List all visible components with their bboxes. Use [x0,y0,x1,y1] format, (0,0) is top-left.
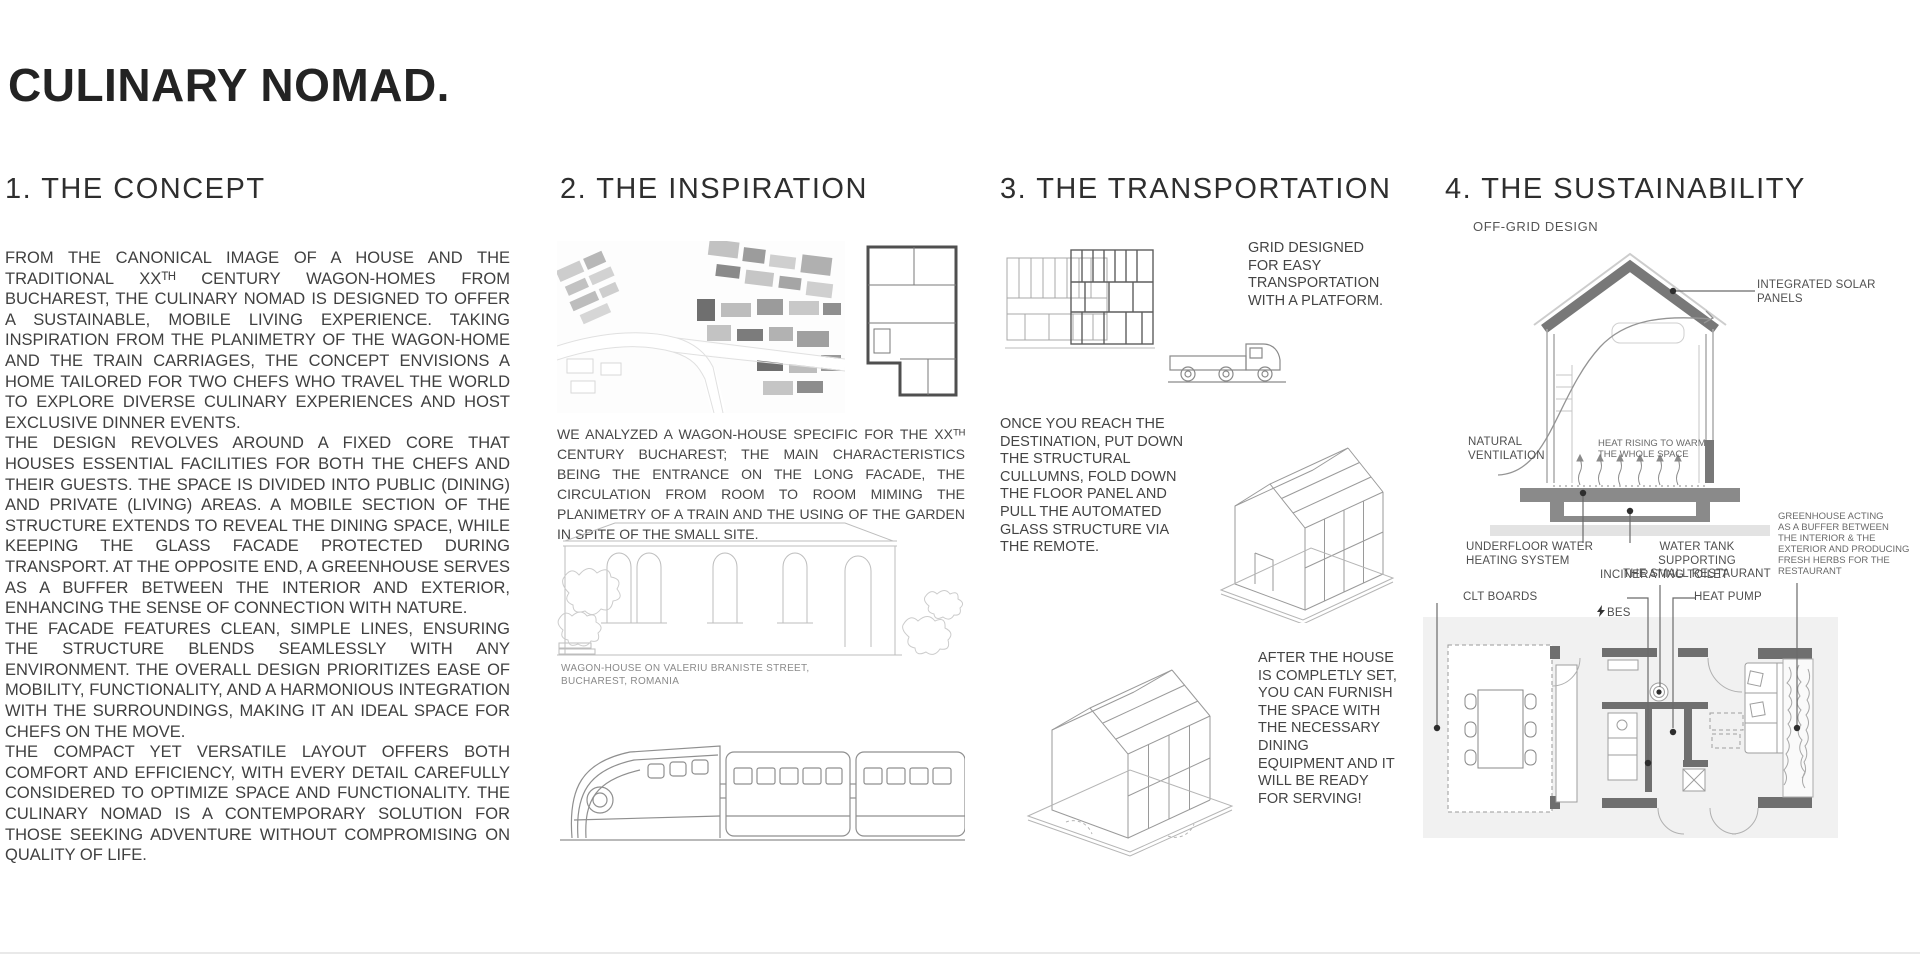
concept-paragraph-3: THE FACADE FEATURES CLEAN, SIMPLE LINES,… [5,619,510,743]
concept-heading: 1. THE CONCEPT [5,173,266,206]
label-underfloor: UNDERFLOOR WATER HEATING SYSTEM [1466,541,1593,568]
label-solar-panels: INTEGRATED SOLAR PANELS [1757,279,1920,306]
concept-text: FROM THE CANONICAL IMAGE OF A HOUSE AND … [5,248,510,866]
label-heat-pump: HEAT PUMP [1694,591,1762,605]
transportation-step2: ONCE YOU REACH THE DESTINATION, PUT DOWN… [1000,416,1230,557]
label-natural-ventilation: NATURAL VENTILATION [1468,436,1545,463]
house-axonometric-2 [1018,610,1258,865]
truck-drawing [1168,326,1286,390]
inspiration-heading: 2. THE INSPIRATION [560,173,868,206]
lightning-bolt-icon [1597,605,1605,617]
poster-title: CULINARY NOMAD. [8,58,450,112]
house-cross-section [1490,254,1770,543]
concept-paragraph-2: THE DESIGN REVOLVES AROUND A FIXED CORE … [5,433,510,618]
label-heat-rising: HEAT RISING TO WARM THE WHOLE SPACE [1598,438,1706,460]
bottom-border [0,952,1920,954]
label-bes-text: BES [1607,607,1631,619]
transportation-step1: GRID DESIGNED FOR EASY TRANSPORTATION WI… [1248,240,1428,310]
concept-paragraph-4: THE COMPACT YET VERSATILE LAYOUT OFFERS … [5,742,510,866]
sustainability-heading: 4. THE SUSTAINABILITY [1445,173,1806,206]
poster-board: CULINARY NOMAD. 1. THE CONCEPT FROM THE … [0,0,1920,960]
house-axonometric-1 [1197,388,1412,623]
wagon-house-elevation [557,515,965,665]
transportation-step3: AFTER THE HOUSE IS COMPLETLY SET, YOU CA… [1258,650,1423,808]
house-floor-plan [1423,583,1838,838]
off-grid-subtitle: OFF-GRID DESIGN [1473,219,1598,234]
train-drawing [560,688,965,860]
building-elevation-grid [1005,242,1155,392]
label-greenhouse: GREENHOUSE ACTING AS A BUFFER BETWEEN TH… [1778,511,1909,577]
label-bes: BES [1597,591,1631,620]
wagon-plan-inset [858,243,965,405]
label-clt-boards: CLT BOARDS [1463,591,1537,605]
concept-paragraph-1: FROM THE CANONICAL IMAGE OF A HOUSE AND … [5,248,510,433]
transportation-heading: 3. THE TRANSPORTATION [1000,173,1391,206]
label-incinerating-toilet: INCINERATING TOILET [1600,569,1728,583]
city-map-figure [557,241,845,413]
photo-caption: WAGON-HOUSE ON VALERIU BRANISTE STREET, … [561,662,809,688]
